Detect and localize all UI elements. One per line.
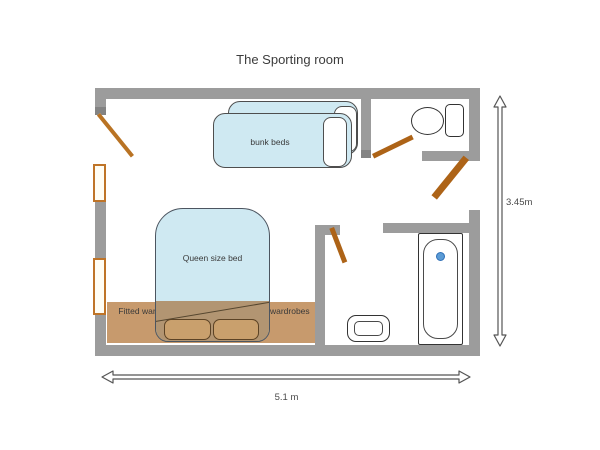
window-lower-icon [93,258,106,315]
wall-left-lower [95,315,106,346]
queen-bed: Queen size bed [155,208,270,342]
wall-wc-left-cap [361,150,371,158]
window-upper-icon [93,164,106,202]
toilet-bowl-icon [411,107,444,135]
width-dimension-label: 5.1 m [105,392,468,403]
height-dimension-label: 3.45m [506,197,532,208]
floor-plan-page: The Sporting room bunk beds Fitte [0,0,600,450]
wall-bathroom-left [315,225,325,345]
wall-bottom [95,345,480,356]
balcony-door-leaf-icon [97,113,134,157]
bathtub-drain-icon [436,252,445,261]
wall-right-upper [469,99,480,161]
bathtub-basin [423,239,458,339]
bunk-beds-label: bunk beds [205,137,335,148]
queen-bed-label: Queen size bed [156,253,269,264]
wall-bathroom-top [383,223,469,233]
queen-pillow-right [213,319,259,340]
sink-icon [347,315,390,342]
height-dimension-arrow [492,94,508,348]
wc-door-leaf-icon [372,135,414,159]
floor-plan: bunk beds Fitted wardrobes Fitted wardro… [0,0,600,450]
wall-top [95,88,480,99]
toilet-tank-icon [445,104,464,137]
width-dimension-arrow [100,369,472,385]
bathtub-icon [418,233,463,345]
sink-basin [354,321,383,336]
entrance-door-leaf-icon [431,156,469,200]
wall-right-lower [469,210,480,345]
wall-left-middle [95,202,106,258]
queen-pillow-left [164,319,211,340]
